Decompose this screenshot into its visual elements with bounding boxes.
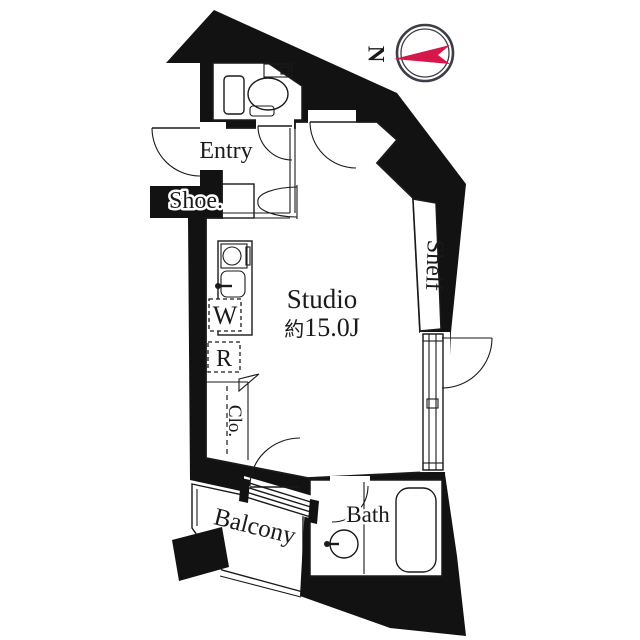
window-gap [420, 332, 450, 472]
bath-label: Bath [346, 502, 390, 527]
refrigerator-label: R [216, 346, 232, 372]
entry-label: Entry [199, 138, 252, 164]
studio-label: Studio [287, 284, 358, 314]
floorplan-canvas: Entry Shoe. W R Clo. Studio 約15.0J Shelf… [0, 0, 640, 640]
shelf-label: Shelf [420, 239, 448, 291]
basin-handle-icon [324, 541, 330, 547]
shoe-label: Shoe. [169, 188, 223, 214]
closet-label: Clo. [224, 405, 245, 437]
compass-north-label: N [364, 46, 389, 63]
toilet-door-gap [256, 118, 294, 130]
washer-label: W [213, 301, 238, 330]
floorplan-page: Entry Shoe. W R Clo. Studio 約15.0J Shelf… [0, 0, 640, 640]
faucet-handle-icon [215, 283, 221, 289]
bath-room [310, 480, 442, 576]
